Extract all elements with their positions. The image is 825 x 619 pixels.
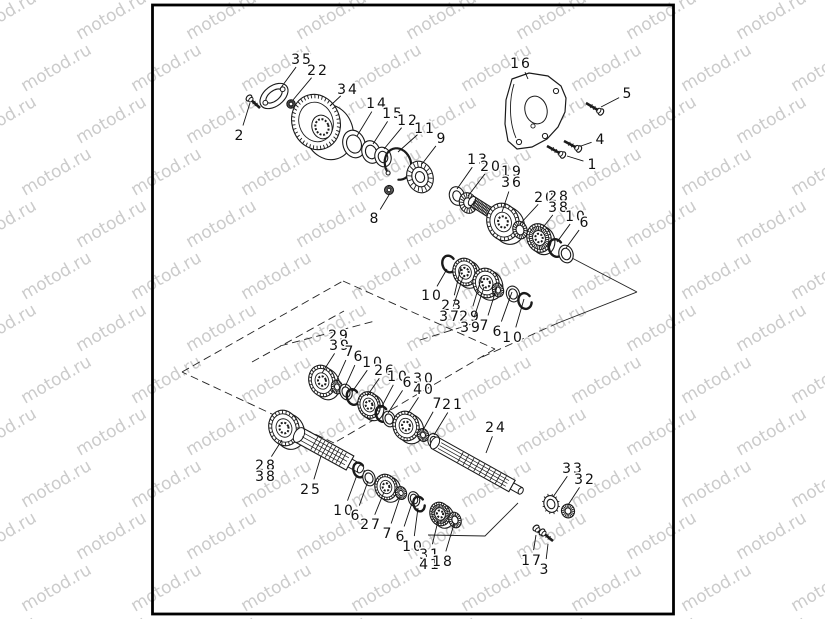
watermark-text: motod.ru	[0, 0, 40, 44]
part-label-10: 10	[421, 288, 443, 304]
watermark-text: motod.ru	[18, 40, 96, 96]
part-label-32: 32	[574, 472, 596, 488]
watermark-text: motod.ru	[788, 352, 825, 408]
watermark-text: motod.ru	[238, 248, 316, 304]
leader-line-6	[566, 230, 579, 248]
part-label-36: 36	[501, 175, 523, 191]
watermark-text: motod.ru	[18, 144, 96, 200]
leader-line-33	[553, 476, 567, 497]
watermark-text: motod.ru	[733, 92, 811, 148]
watermark-text: motod.ru	[348, 40, 426, 96]
part-label-21: 21	[442, 397, 464, 413]
watermark-text: motod.ru	[678, 248, 756, 304]
watermark-text: motod.ru	[733, 300, 811, 356]
watermark-text: motod.ru	[733, 612, 811, 619]
leader-line-25	[314, 456, 321, 479]
part-label-3: 3	[540, 562, 551, 578]
leader-line-24	[486, 436, 492, 453]
watermark-text: motod.ru	[128, 40, 206, 96]
lock-washer-33	[542, 494, 561, 514]
watermark-text: motod.ru	[513, 404, 591, 460]
part-label-24: 24	[485, 420, 507, 436]
catalog-page: motod.rumotod.rumotod.rumotod.rumotod.ru…	[0, 0, 825, 619]
watermark-text: motod.ru	[733, 404, 811, 460]
watermark-text: motod.ru	[733, 196, 811, 252]
watermark-text: motod.ru	[0, 300, 40, 356]
leader-line-40	[407, 397, 419, 415]
watermark-text: motod.ru	[128, 456, 206, 512]
watermark-text: motod.ru	[0, 612, 40, 619]
watermark-text: motod.ru	[678, 352, 756, 408]
watermark-text: motod.ru	[293, 0, 371, 44]
watermark-text: motod.ru	[73, 92, 151, 148]
watermark-text: motod.ru	[293, 196, 371, 252]
part-label-7: 7	[383, 526, 394, 542]
leader-line-6	[345, 365, 355, 387]
nut-8	[383, 184, 394, 195]
watermark-text: motod.ru	[733, 508, 811, 564]
watermark-text: motod.ru	[238, 560, 316, 616]
leader-line-4	[581, 142, 592, 146]
part-label-38: 38	[255, 469, 277, 485]
watermark-text: motod.ru	[733, 0, 811, 44]
part-label-16: 16	[510, 56, 532, 72]
leader-line-7	[336, 360, 346, 382]
watermark-text: motod.ru	[678, 456, 756, 512]
part-label-9: 9	[437, 131, 448, 147]
leader-line-8	[380, 195, 389, 209]
watermark-text: motod.ru	[513, 0, 591, 44]
watermark-text: motod.ru	[568, 352, 646, 408]
watermark-text: motod.ru	[18, 456, 96, 512]
bolt-4	[564, 141, 583, 153]
watermark-text: motod.ru	[623, 404, 701, 460]
watermark-text: motod.ru	[238, 352, 316, 408]
watermark-text: motod.ru	[788, 40, 825, 96]
leader-line-6	[404, 503, 412, 527]
leader-line-15	[373, 121, 388, 144]
part-label-10: 10	[502, 330, 524, 346]
watermark-text: motod.ru	[788, 144, 825, 200]
watermark-text: motod.ru	[788, 560, 825, 616]
watermark-text: motod.ru	[18, 248, 96, 304]
watermark-text: motod.ru	[0, 196, 40, 252]
watermark-text: motod.ru	[0, 404, 40, 460]
watermark-text: motod.ru	[183, 0, 261, 44]
watermark-text: motod.ru	[403, 0, 481, 44]
watermark-text: motod.ru	[678, 560, 756, 616]
leader-line-9	[422, 146, 436, 164]
bolt-1	[547, 146, 567, 159]
watermark-text: motod.ru	[348, 248, 426, 304]
part-label-11: 11	[414, 121, 436, 137]
watermark-text: motod.ru	[73, 196, 151, 252]
watermark-text: motod.ru	[623, 92, 701, 148]
watermark-text: motod.ru	[73, 508, 151, 564]
watermark-text: motod.ru	[678, 40, 756, 96]
watermark-text: motod.ru	[128, 248, 206, 304]
watermark-text: motod.ru	[183, 404, 261, 460]
part-label-2: 2	[235, 128, 246, 144]
watermark-text: motod.ru	[623, 0, 701, 44]
watermark-text: motod.ru	[73, 300, 151, 356]
leader-line-6	[388, 390, 403, 413]
part-label-27: 27	[360, 517, 382, 533]
watermark-text: motod.ru	[128, 560, 206, 616]
part-label-5: 5	[623, 86, 634, 102]
part-label-34: 34	[337, 82, 359, 98]
watermark-text: motod.ru	[788, 456, 825, 512]
part-label-20: 20	[480, 159, 502, 175]
parts-diagram-svg: motod.rumotod.rumotod.rumotod.rumotod.ru…	[0, 0, 825, 619]
watermark-layer: motod.rumotod.rumotod.rumotod.rumotod.ru…	[0, 0, 825, 619]
part-label-37: 37	[439, 309, 461, 325]
watermark-text: motod.ru	[458, 352, 536, 408]
part-label-4: 4	[596, 132, 607, 148]
part-label-25: 25	[300, 482, 322, 498]
snap-ring-10	[518, 293, 531, 309]
part-label-8: 8	[370, 211, 381, 227]
leader-line-12	[384, 128, 402, 149]
watermark-text: motod.ru	[238, 144, 316, 200]
part-label-6: 6	[580, 215, 591, 231]
watermark-text: motod.ru	[73, 0, 151, 44]
watermark-text: motod.ru	[623, 196, 701, 252]
leader-line-10	[414, 508, 418, 536]
watermark-text: motod.ru	[18, 352, 96, 408]
watermark-text: motod.ru	[568, 560, 646, 616]
part-label-7: 7	[480, 318, 491, 334]
ring-6	[557, 243, 576, 264]
watermark-text: motod.ru	[73, 612, 151, 619]
watermark-text: motod.ru	[18, 560, 96, 616]
watermark-text: motod.ru	[183, 300, 261, 356]
watermark-text: motod.ru	[0, 508, 40, 564]
bracket-16	[505, 73, 566, 149]
watermark-text: motod.ru	[348, 560, 426, 616]
leader-line-1	[567, 156, 583, 161]
watermark-text: motod.ru	[73, 404, 151, 460]
watermark-text: motod.ru	[623, 300, 701, 356]
leader-line-10	[437, 269, 447, 286]
watermark-text: motod.ru	[128, 352, 206, 408]
part-label-22: 22	[307, 63, 329, 79]
watermark-text: motod.ru	[788, 248, 825, 304]
watermark-text: motod.ru	[623, 508, 701, 564]
part-label-6: 6	[403, 375, 414, 391]
leader-line-5	[601, 98, 619, 107]
part-label-1: 1	[588, 157, 599, 173]
watermark-text: motod.ru	[183, 196, 261, 252]
watermark-text: motod.ru	[0, 92, 40, 148]
watermark-text: motod.ru	[183, 508, 261, 564]
watermark-text: motod.ru	[678, 144, 756, 200]
watermark-text: motod.ru	[128, 144, 206, 200]
part-label-18: 18	[432, 554, 454, 570]
